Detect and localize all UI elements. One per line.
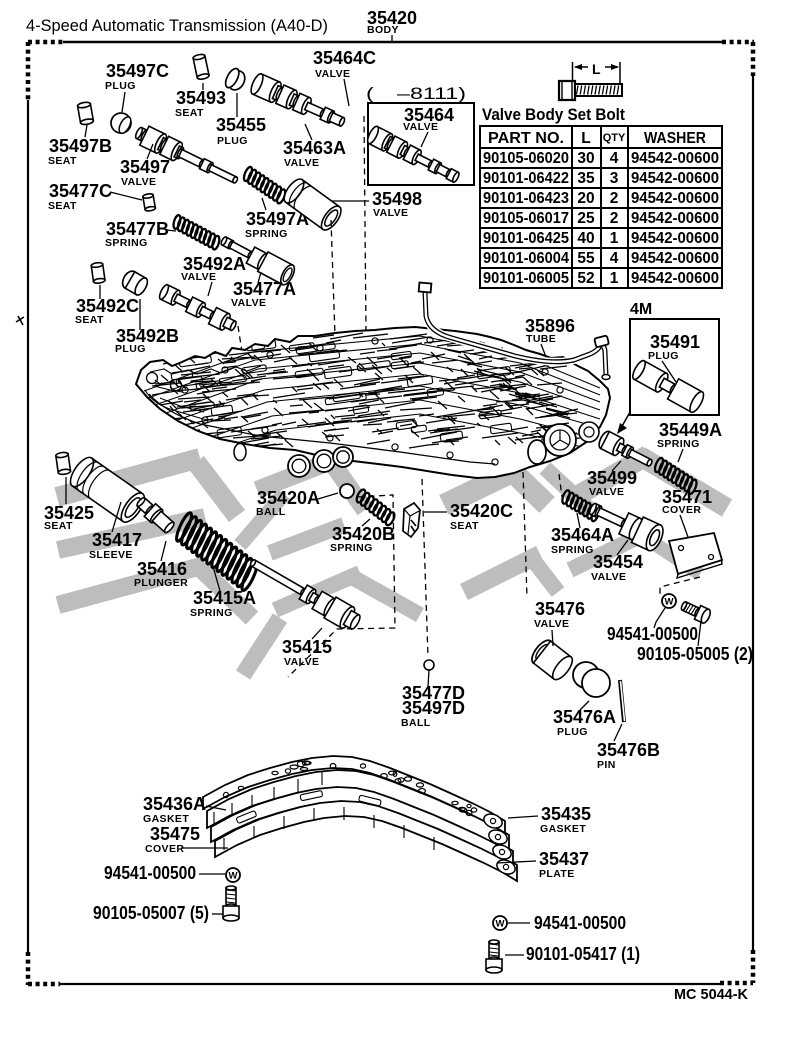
svg-text:L: L [581,130,590,147]
svg-text:PLUNGER: PLUNGER [134,577,188,589]
svg-text:W: W [229,870,238,881]
svg-text:1: 1 [610,230,619,247]
svg-text:VALVE: VALVE [373,207,408,219]
svg-text:VALVE: VALVE [591,571,626,583]
svg-text:35464A: 35464A [551,525,614,545]
svg-text:90101-06005: 90101-06005 [483,270,569,287]
svg-text:3: 3 [610,170,619,187]
svg-text:35498: 35498 [372,189,422,209]
svg-text:35476A: 35476A [553,707,616,727]
svg-text:SEAT: SEAT [44,520,73,532]
svg-text:94541-00500: 94541-00500 [534,913,626,933]
svg-text:SPRING: SPRING [551,544,594,556]
svg-text:PIN: PIN [597,759,616,771]
svg-text:QTY: QTY [603,132,626,144]
svg-text:TUBE: TUBE [526,333,556,345]
svg-text:90101-06423: 90101-06423 [483,190,569,207]
svg-text:4M: 4M [630,301,652,318]
svg-text:35435: 35435 [541,804,591,824]
svg-text:2: 2 [610,190,619,207]
svg-text:PLUG: PLUG [115,343,146,355]
svg-text:VALVE: VALVE [121,176,156,188]
svg-text:35420C: 35420C [450,501,513,521]
svg-text:VALVE: VALVE [403,121,438,133]
svg-text:SEAT: SEAT [175,107,204,119]
svg-text:SPRING: SPRING [105,237,148,249]
svg-text:94542-00600: 94542-00600 [631,230,719,247]
svg-text:VALVE: VALVE [284,157,319,169]
svg-text:35497D: 35497D [402,698,465,718]
svg-text:35415A: 35415A [193,588,256,608]
svg-text:SEAT: SEAT [48,200,77,212]
svg-text:VALVE: VALVE [315,68,350,80]
svg-text:94542-00600: 94542-00600 [631,270,719,287]
svg-text:COVER: COVER [662,504,701,516]
svg-text:90105-06020: 90105-06020 [483,150,569,167]
svg-text:30: 30 [577,150,594,167]
svg-text:35476: 35476 [535,599,585,619]
svg-text:PLUG: PLUG [105,80,136,92]
svg-text:35464C: 35464C [313,48,376,68]
svg-text:35417: 35417 [92,530,142,550]
svg-text:W: W [665,596,674,607]
svg-text:35497: 35497 [120,157,170,177]
svg-text:L: L [592,61,601,77]
svg-text:35449A: 35449A [659,420,722,440]
svg-text:VALVE: VALVE [284,656,319,668]
svg-text:SEAT: SEAT [75,314,104,326]
svg-text:4: 4 [610,250,619,267]
svg-text:35477B: 35477B [106,219,169,239]
svg-text:94542-00600: 94542-00600 [631,190,719,207]
svg-text:PLUG: PLUG [217,135,248,147]
svg-text:90101-05417 (1): 90101-05417 (1) [526,944,640,964]
svg-text:94542-00600: 94542-00600 [631,150,719,167]
svg-text:90101-06425: 90101-06425 [483,230,569,247]
svg-text:BALL: BALL [256,506,286,518]
svg-text:35454: 35454 [593,552,643,572]
svg-text:SLEEVE: SLEEVE [89,549,133,561]
svg-text:94541-00500: 94541-00500 [607,624,698,644]
svg-text:VALVE: VALVE [231,297,266,309]
svg-text:55: 55 [577,250,595,267]
svg-text:52: 52 [577,270,594,287]
svg-text:90105-05007 (5): 90105-05007 (5) [93,903,209,923]
svg-text:PLUG: PLUG [648,350,679,362]
svg-text:35491: 35491 [650,332,700,352]
svg-text:VALVE: VALVE [181,271,216,283]
svg-text:SEAT: SEAT [450,520,479,532]
svg-text:90101-06422: 90101-06422 [483,170,569,187]
svg-text:94542-00600: 94542-00600 [631,210,719,227]
svg-text:SPRING: SPRING [657,438,700,450]
svg-text:VALVE: VALVE [589,486,624,498]
svg-text:BALL: BALL [401,717,431,729]
svg-text:35497B: 35497B [49,136,112,156]
svg-text:BODY: BODY [367,24,399,36]
svg-text:35475: 35475 [150,824,200,844]
svg-text:35493: 35493 [176,88,226,108]
svg-text:35497C: 35497C [106,61,169,81]
svg-text:4: 4 [610,150,619,167]
svg-text:4-Speed Automatic Transmission: 4-Speed Automatic Transmission (A40-D) [26,16,328,35]
svg-text:35420B: 35420B [332,524,395,544]
svg-text:SPRING: SPRING [330,542,373,554]
svg-text:35463A: 35463A [283,138,346,158]
svg-text:W: W [496,918,505,929]
svg-text:35492C: 35492C [76,296,139,316]
svg-text:SPRING: SPRING [245,228,288,240]
svg-text:94541-00500: 94541-00500 [104,863,196,883]
svg-text:35436A: 35436A [143,794,206,814]
svg-text:35416: 35416 [137,559,187,579]
svg-text:90105-05005 (2): 90105-05005 (2) [637,644,753,664]
svg-text:35476B: 35476B [597,740,660,760]
svg-text:SPRING: SPRING [190,607,233,619]
svg-text:2: 2 [610,210,619,227]
svg-text:PLUG: PLUG [557,726,588,738]
svg-text:35420A: 35420A [257,488,320,508]
svg-text:GASKET: GASKET [540,823,586,835]
svg-text:WASHER: WASHER [644,130,706,147]
svg-text:90105-06017: 90105-06017 [483,210,569,227]
svg-text:35477A: 35477A [233,279,296,299]
svg-text:40: 40 [577,230,594,247]
svg-text:VALVE: VALVE [534,618,569,630]
svg-text:94542-00600: 94542-00600 [631,170,719,187]
svg-text:35437: 35437 [539,849,589,869]
svg-text:PART NO.: PART NO. [488,130,564,147]
svg-text:1: 1 [610,270,619,287]
svg-text:35477C: 35477C [49,181,112,201]
svg-text:COVER: COVER [145,843,184,855]
svg-text:94542-00600: 94542-00600 [631,250,719,267]
svg-text:MC 5044-K: MC 5044-K [674,986,748,1003]
svg-text:20: 20 [577,190,594,207]
svg-text:( –8111): ( –8111) [366,84,466,103]
svg-text:35415: 35415 [282,637,332,657]
svg-text:SEAT: SEAT [48,155,77,167]
svg-text:35455: 35455 [216,115,266,135]
svg-text:Valve Body Set Bolt: Valve Body Set Bolt [482,105,625,124]
svg-text:90101-06004: 90101-06004 [483,250,569,267]
svg-text:35: 35 [577,170,595,187]
svg-text:25: 25 [577,210,595,227]
svg-text:PLATE: PLATE [539,868,575,880]
